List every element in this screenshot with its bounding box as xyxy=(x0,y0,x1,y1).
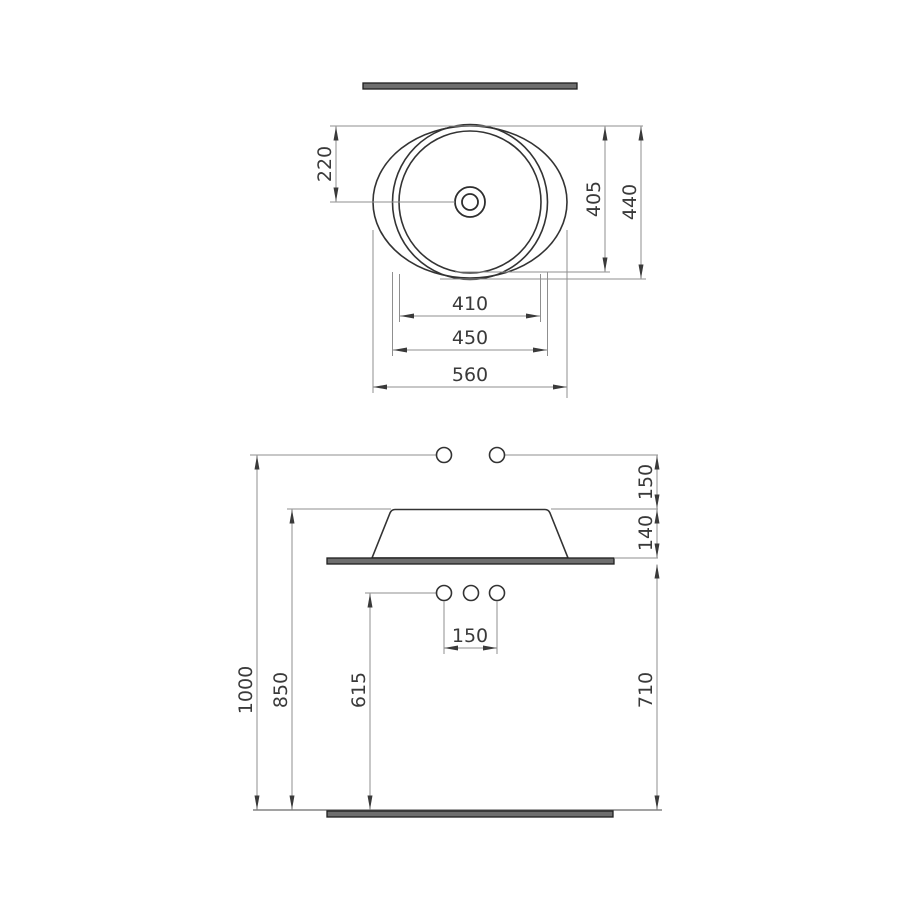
dim-150-holes: 150 xyxy=(444,625,497,648)
supply-hole-center xyxy=(464,586,479,601)
dim-220: 220 xyxy=(314,127,336,202)
dim-615: 615 xyxy=(348,594,370,810)
dim-label-405: 405 xyxy=(583,181,605,217)
faucet-hole-left xyxy=(437,448,452,463)
dim-405: 405 xyxy=(583,127,605,272)
dim-label-450: 450 xyxy=(452,327,488,349)
faucet-hole-right xyxy=(490,448,505,463)
dim-label-150-faucet: 150 xyxy=(635,464,657,500)
technical-drawing-canvas: 220 405 440 410 450 560 xyxy=(0,0,900,900)
drain-outer-circle xyxy=(455,187,485,217)
supply-hole-left xyxy=(437,586,452,601)
dim-1000: 1000 xyxy=(235,456,257,810)
basin-profile xyxy=(372,510,568,559)
top-view: 220 405 440 410 450 560 xyxy=(314,83,646,398)
dim-label-560: 560 xyxy=(452,364,488,386)
dim-710: 710 xyxy=(635,565,657,810)
top-view-extension-lines xyxy=(330,126,646,398)
dim-450: 450 xyxy=(393,327,547,350)
floor-bar xyxy=(327,811,613,817)
countertop-bar xyxy=(327,558,614,564)
dim-140: 140 xyxy=(635,510,657,558)
dim-label-140: 140 xyxy=(635,515,657,551)
dim-150-faucet: 150 xyxy=(635,456,657,509)
dim-label-410: 410 xyxy=(452,293,488,315)
dim-560: 560 xyxy=(373,364,567,387)
dim-label-615: 615 xyxy=(348,672,370,708)
dim-440: 440 xyxy=(619,127,641,279)
dim-label-440: 440 xyxy=(619,184,641,220)
dim-label-1000: 1000 xyxy=(235,666,257,714)
wall-bar xyxy=(363,83,577,89)
supply-hole-right xyxy=(490,586,505,601)
dim-label-220: 220 xyxy=(314,146,336,182)
dim-label-710: 710 xyxy=(635,672,657,708)
dim-410: 410 xyxy=(400,293,540,316)
dim-label-150-holes: 150 xyxy=(452,625,488,647)
dim-label-850: 850 xyxy=(270,672,292,708)
drain-inner-circle xyxy=(462,194,478,210)
dim-850: 850 xyxy=(270,510,292,810)
front-view: 1000 850 615 150 140 710 150 xyxy=(235,448,662,818)
